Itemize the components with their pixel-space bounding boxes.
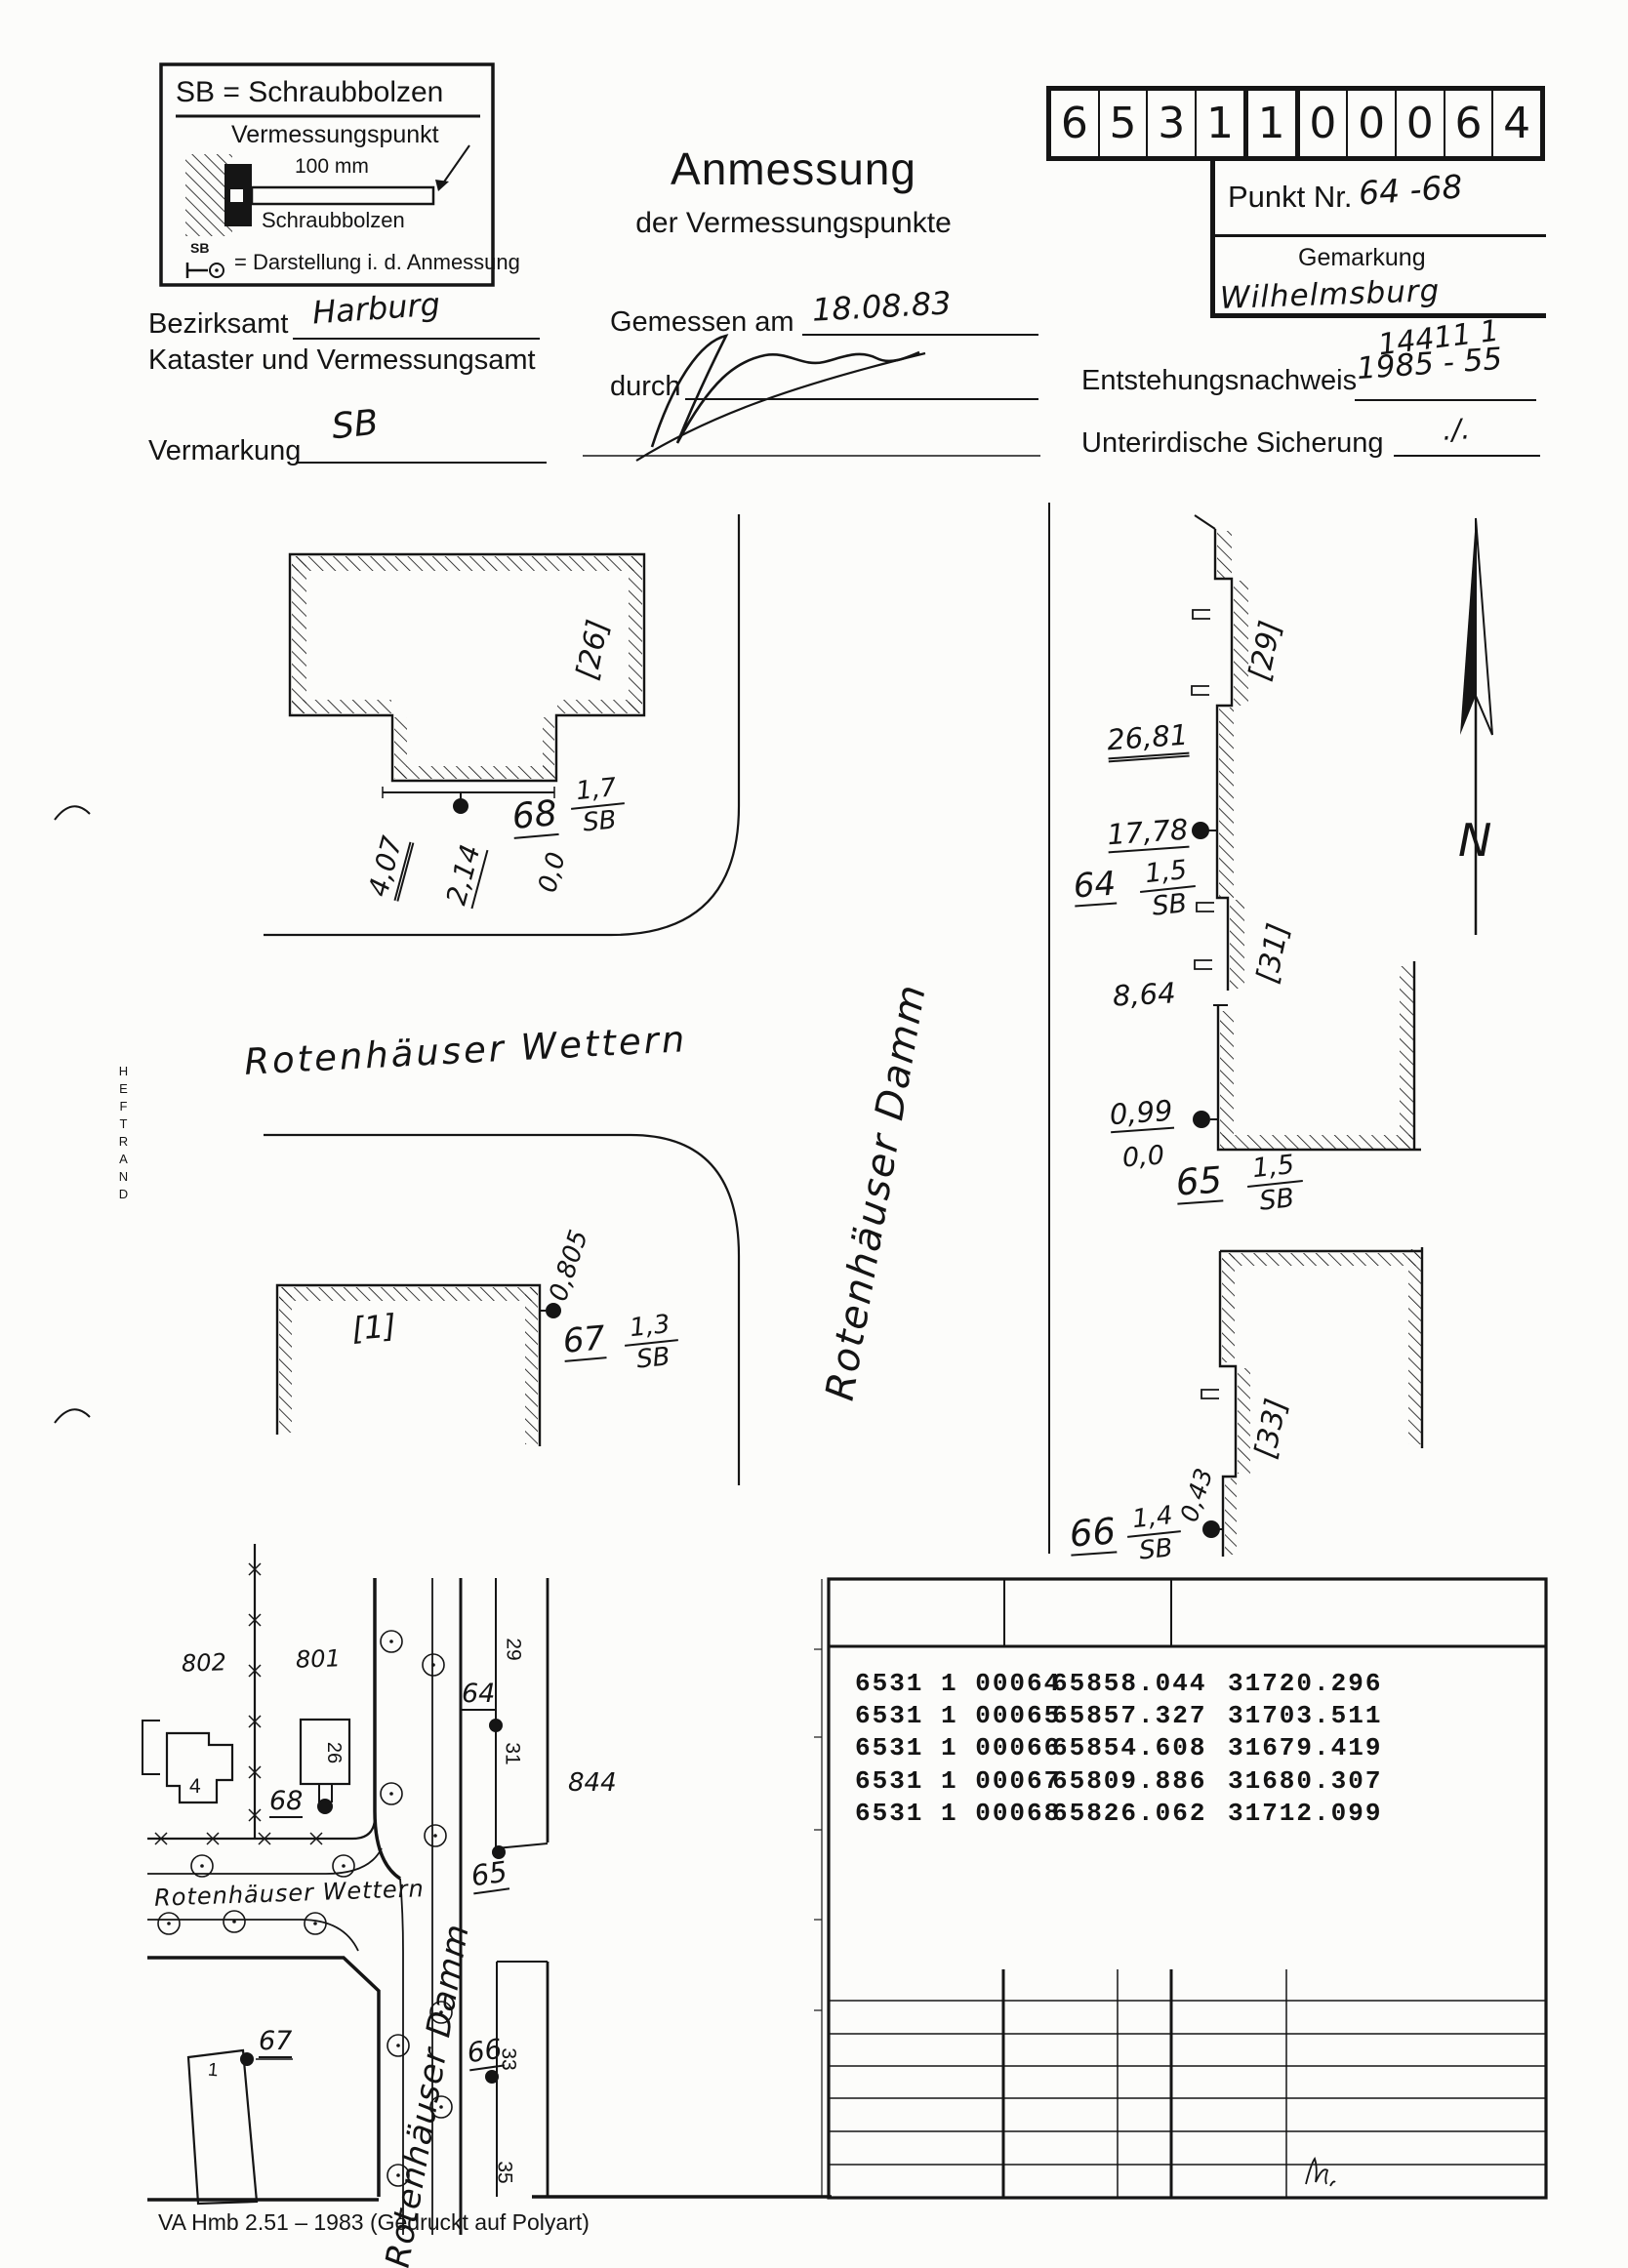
legend-point-label: Vermessungspunkt (231, 123, 439, 147)
offset-value: 1,3 (622, 1311, 678, 1347)
point-64-label: 64 (1073, 868, 1118, 908)
code-digit: 0 (1397, 91, 1445, 156)
offset-value: 1,4 (1124, 1502, 1181, 1538)
vermarkung-value: SB (330, 406, 380, 446)
map-house-4: 4 (189, 1776, 201, 1797)
pointer-arrow-icon (435, 145, 469, 191)
table-cell-nr: 6531 1 00068 (855, 1801, 1061, 1826)
offset-value: 1,5 (1244, 1151, 1303, 1188)
code-digit: 0 (1348, 91, 1397, 156)
table-cell-nr: 6531 1 00067 (855, 1768, 1061, 1794)
measure-17-78: 17,78 (1106, 816, 1189, 854)
title-sub: der Vermessungspunkte (574, 209, 1013, 238)
sicherung-label: Unterirdische Sicherung (1081, 429, 1383, 458)
point-67-label: 67 (561, 1321, 606, 1362)
map-point-65: 65 (469, 1858, 509, 1895)
marker-type: SB (1138, 1533, 1174, 1565)
table-cell-x: 65854.608 (1052, 1735, 1206, 1761)
code-digit: 3 (1148, 91, 1197, 156)
legend-dimension: 100 mm (295, 156, 369, 177)
durch-label: durch (610, 373, 681, 401)
table-cell-nr: 6531 1 00064 (855, 1671, 1061, 1696)
legend-sb-small: SB (190, 241, 209, 255)
sb-symbol-icon (187, 263, 224, 278)
table-cell-y: 31703.511 (1228, 1703, 1382, 1728)
map-parcel-801: 801 (296, 1646, 342, 1672)
point-68-label: 68 (510, 796, 558, 839)
gemessen-label: Gemessen am (610, 308, 794, 337)
entstehung-label: Entstehungsnachweis (1081, 367, 1357, 395)
map-lot-29: 29 (504, 1638, 524, 1660)
legend-darstellung: = Darstellung i. d. Anmessung (234, 252, 520, 273)
vermarkung-label: Vermarkung (148, 437, 301, 466)
point-65-offset: 1,5 SB (1244, 1151, 1306, 1217)
legend-bolt-label: Schraubbolzen (262, 210, 405, 231)
point-67-offset: 1,3 SB (622, 1311, 681, 1375)
map-point-67-dot (240, 2052, 254, 2066)
code-digit: 1 (1248, 91, 1300, 156)
point-65-label: 65 (1175, 1161, 1224, 1204)
map-lot-31: 31 (503, 1742, 523, 1764)
measure-8-64: 8,64 (1112, 979, 1176, 1010)
marker-type: SB (1258, 1183, 1296, 1216)
point-64-offset: 1,5 SB (1137, 856, 1199, 922)
table-cell-nr: 6531 1 00065 (855, 1703, 1061, 1728)
point-66-label: 66 (1069, 1513, 1118, 1556)
gemessen-value: 18.08.83 (811, 287, 952, 325)
map-lot-33: 33 (499, 2047, 519, 2070)
north-arrow-icon (1460, 518, 1492, 935)
survey-point-64-dot (1192, 822, 1209, 839)
bezirksamt-value: Harburg (311, 288, 441, 328)
marker-type: SB (582, 805, 618, 837)
code-digit: 6 (1051, 91, 1100, 156)
map-parcel-844: 844 (568, 1770, 617, 1796)
legend-title: SB = Schraubbolzen (176, 78, 443, 107)
measure-0-99: 0,99 (1109, 1097, 1174, 1133)
survey-point-66-dot (1202, 1520, 1220, 1538)
code-digit: 0 (1300, 91, 1349, 156)
map-point-64: 64 (462, 1681, 495, 1711)
point-66-offset: 1,4 SB (1124, 1502, 1184, 1566)
gemarkung-label: Gemarkung (1298, 246, 1426, 270)
footer-form-id: VA Hmb 2.51 – 1983 (Gedruckt auf Polyart… (158, 2211, 590, 2234)
building-1-label: [1] (350, 1310, 397, 1345)
north-letter: N (1458, 818, 1491, 863)
survey-point-68-dot (453, 798, 468, 814)
map-parcel-802: 802 (182, 1650, 227, 1676)
map-point-68: 68 (269, 1788, 303, 1818)
anmessung-form-page: SB = Schraubbolzen Vermessungspunkt 100 … (0, 0, 1628, 2268)
gemarkung-value: Wilhelmsburg (1220, 276, 1441, 314)
table-cell-y: 31679.419 (1228, 1735, 1382, 1761)
survey-point-65-dot (1193, 1111, 1210, 1128)
point-68-offset: 1,7 SB (568, 774, 628, 838)
measure-0-0-b: 0,0 (1121, 1143, 1165, 1172)
map-point-68-dot (317, 1799, 333, 1814)
table-cell-y: 31680.307 (1228, 1768, 1382, 1794)
measure-26-81: 26,81 (1106, 721, 1189, 763)
point-code-strip: 6 5 3 1 1 0 0 0 6 4 (1046, 86, 1545, 161)
table-cell-x: 65809.886 (1052, 1768, 1206, 1794)
offset-value: 1,5 (1137, 856, 1196, 893)
table-cell-y: 31720.296 (1228, 1671, 1382, 1696)
heftrand-label: HEFTRAND (117, 1064, 130, 1204)
survey-point-67-dot (546, 1303, 561, 1318)
code-digit: 6 (1445, 91, 1494, 156)
punkt-nr-value: 64 -68 (1358, 170, 1463, 209)
page-title: Anmessung der Vermessungspunkte (574, 146, 1013, 238)
table-cell-x: 65858.044 (1052, 1671, 1206, 1696)
sicherung-value: ./. (1442, 415, 1471, 444)
map-point-66-dot (485, 2070, 499, 2084)
title-main: Anmessung (574, 146, 1013, 191)
bezirksamt-label: Bezirksamt (148, 310, 288, 339)
punkt-nr-label: Punkt Nr. (1228, 182, 1353, 212)
table-cell-x: 65826.062 (1052, 1801, 1206, 1826)
map-point-67: 67 (259, 2028, 292, 2058)
code-digit: 5 (1100, 91, 1149, 156)
marker-type: SB (1151, 888, 1189, 921)
table-cell-y: 31712.099 (1228, 1801, 1382, 1826)
code-digit: 4 (1493, 91, 1540, 156)
map-lot-35: 35 (495, 2161, 515, 2183)
table-cell-nr: 6531 1 00066 (855, 1735, 1061, 1761)
marker-type: SB (635, 1342, 672, 1374)
map-house-26: 26 (324, 1742, 344, 1763)
code-digit: 1 (1197, 91, 1248, 156)
table-cell-x: 65857.327 (1052, 1703, 1206, 1728)
initials-scrawl (1306, 2159, 1335, 2186)
offset-value: 1,7 (568, 774, 625, 810)
map-house-1: 1 (207, 2061, 219, 2081)
kataster-label: Kataster und Vermessungsamt (148, 346, 536, 375)
map-point-64-dot (489, 1719, 503, 1732)
